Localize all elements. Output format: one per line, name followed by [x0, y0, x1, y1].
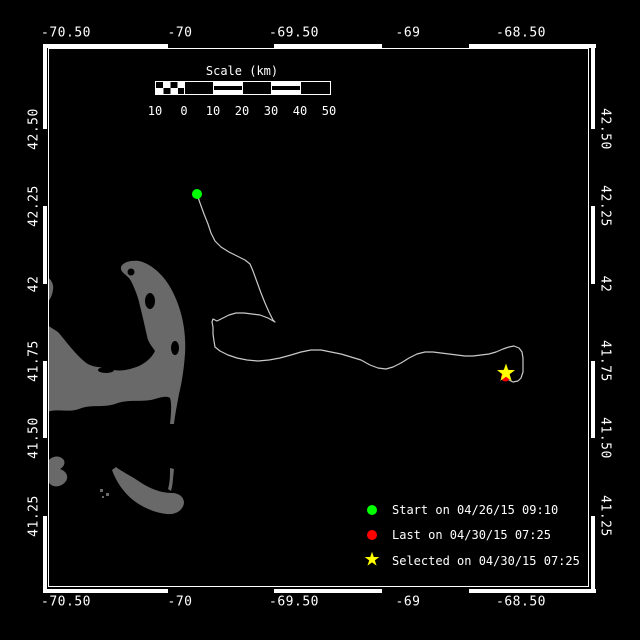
map-view: -70.50 -70 -69.50 -69 -68.50 -70.50 -70 … — [0, 0, 640, 640]
scale-tick-label: 40 — [293, 104, 307, 118]
last-legend-label: Last on 04/30/15 07:25 — [392, 528, 551, 542]
frame-band — [43, 44, 168, 48]
frame-band — [43, 361, 47, 438]
frame-band — [43, 516, 47, 593]
scale-tick-label: 10 — [148, 104, 162, 118]
lat-label-left: 41.25 — [27, 495, 42, 537]
scale-tick-label: 10 — [206, 104, 220, 118]
frame-band — [43, 589, 168, 593]
scale-segment — [156, 82, 185, 94]
lon-label-bottom: -70.50 — [41, 595, 91, 610]
frame-band — [591, 516, 595, 593]
selected-legend-label: Selected on 04/30/15 07:25 — [392, 554, 580, 568]
start-legend-dot-icon — [367, 505, 377, 515]
scale-bar — [155, 81, 331, 95]
lat-label-right: 42.50 — [598, 108, 613, 150]
frame-band — [591, 44, 595, 129]
scale-tick-label: 20 — [235, 104, 249, 118]
scale-tick-label: 50 — [322, 104, 336, 118]
lon-label-bottom: -69 — [396, 595, 421, 610]
lat-label-right: 41.50 — [598, 417, 613, 459]
scale-tick-label: 30 — [264, 104, 278, 118]
frame-band — [591, 206, 595, 284]
lat-label-left: 41.75 — [27, 340, 42, 382]
lat-label-left: 42 — [27, 276, 42, 293]
lon-label-top: -69 — [396, 26, 421, 41]
frame-band — [469, 589, 596, 593]
lon-label-top: -70 — [168, 26, 193, 41]
scale-segment — [272, 82, 301, 94]
lon-label-top: -70.50 — [41, 26, 91, 41]
lat-label-left: 42.50 — [27, 108, 42, 150]
lat-label-left: 42.25 — [27, 185, 42, 227]
scale-tick-label: 0 — [180, 104, 187, 118]
selected-legend-star-icon: ★ — [363, 551, 380, 570]
lon-label-top: -68.50 — [496, 26, 546, 41]
start-legend-label: Start on 04/26/15 09:10 — [392, 503, 558, 517]
scale-segment — [214, 82, 243, 94]
lat-label-right: 42.25 — [598, 185, 613, 227]
scale-bar-title: Scale (km) — [206, 64, 278, 78]
frame-band — [43, 44, 47, 129]
frame-band — [591, 361, 595, 438]
scale-segment — [243, 82, 272, 94]
lon-label-bottom: -69.50 — [269, 595, 319, 610]
frame-band — [274, 589, 382, 593]
frame-band — [469, 44, 596, 48]
lon-label-bottom: -68.50 — [496, 595, 546, 610]
lat-label-left: 41.50 — [27, 417, 42, 459]
last-legend-dot-icon — [367, 530, 377, 540]
scale-segment — [185, 82, 214, 94]
lat-label-right: 42 — [598, 276, 613, 293]
lat-label-right: 41.25 — [598, 495, 613, 537]
lon-label-top: -69.50 — [269, 26, 319, 41]
frame-band — [274, 44, 382, 48]
frame-band — [43, 206, 47, 284]
scale-segment — [301, 82, 330, 94]
lon-label-bottom: -70 — [168, 595, 193, 610]
lat-label-right: 41.75 — [598, 340, 613, 382]
